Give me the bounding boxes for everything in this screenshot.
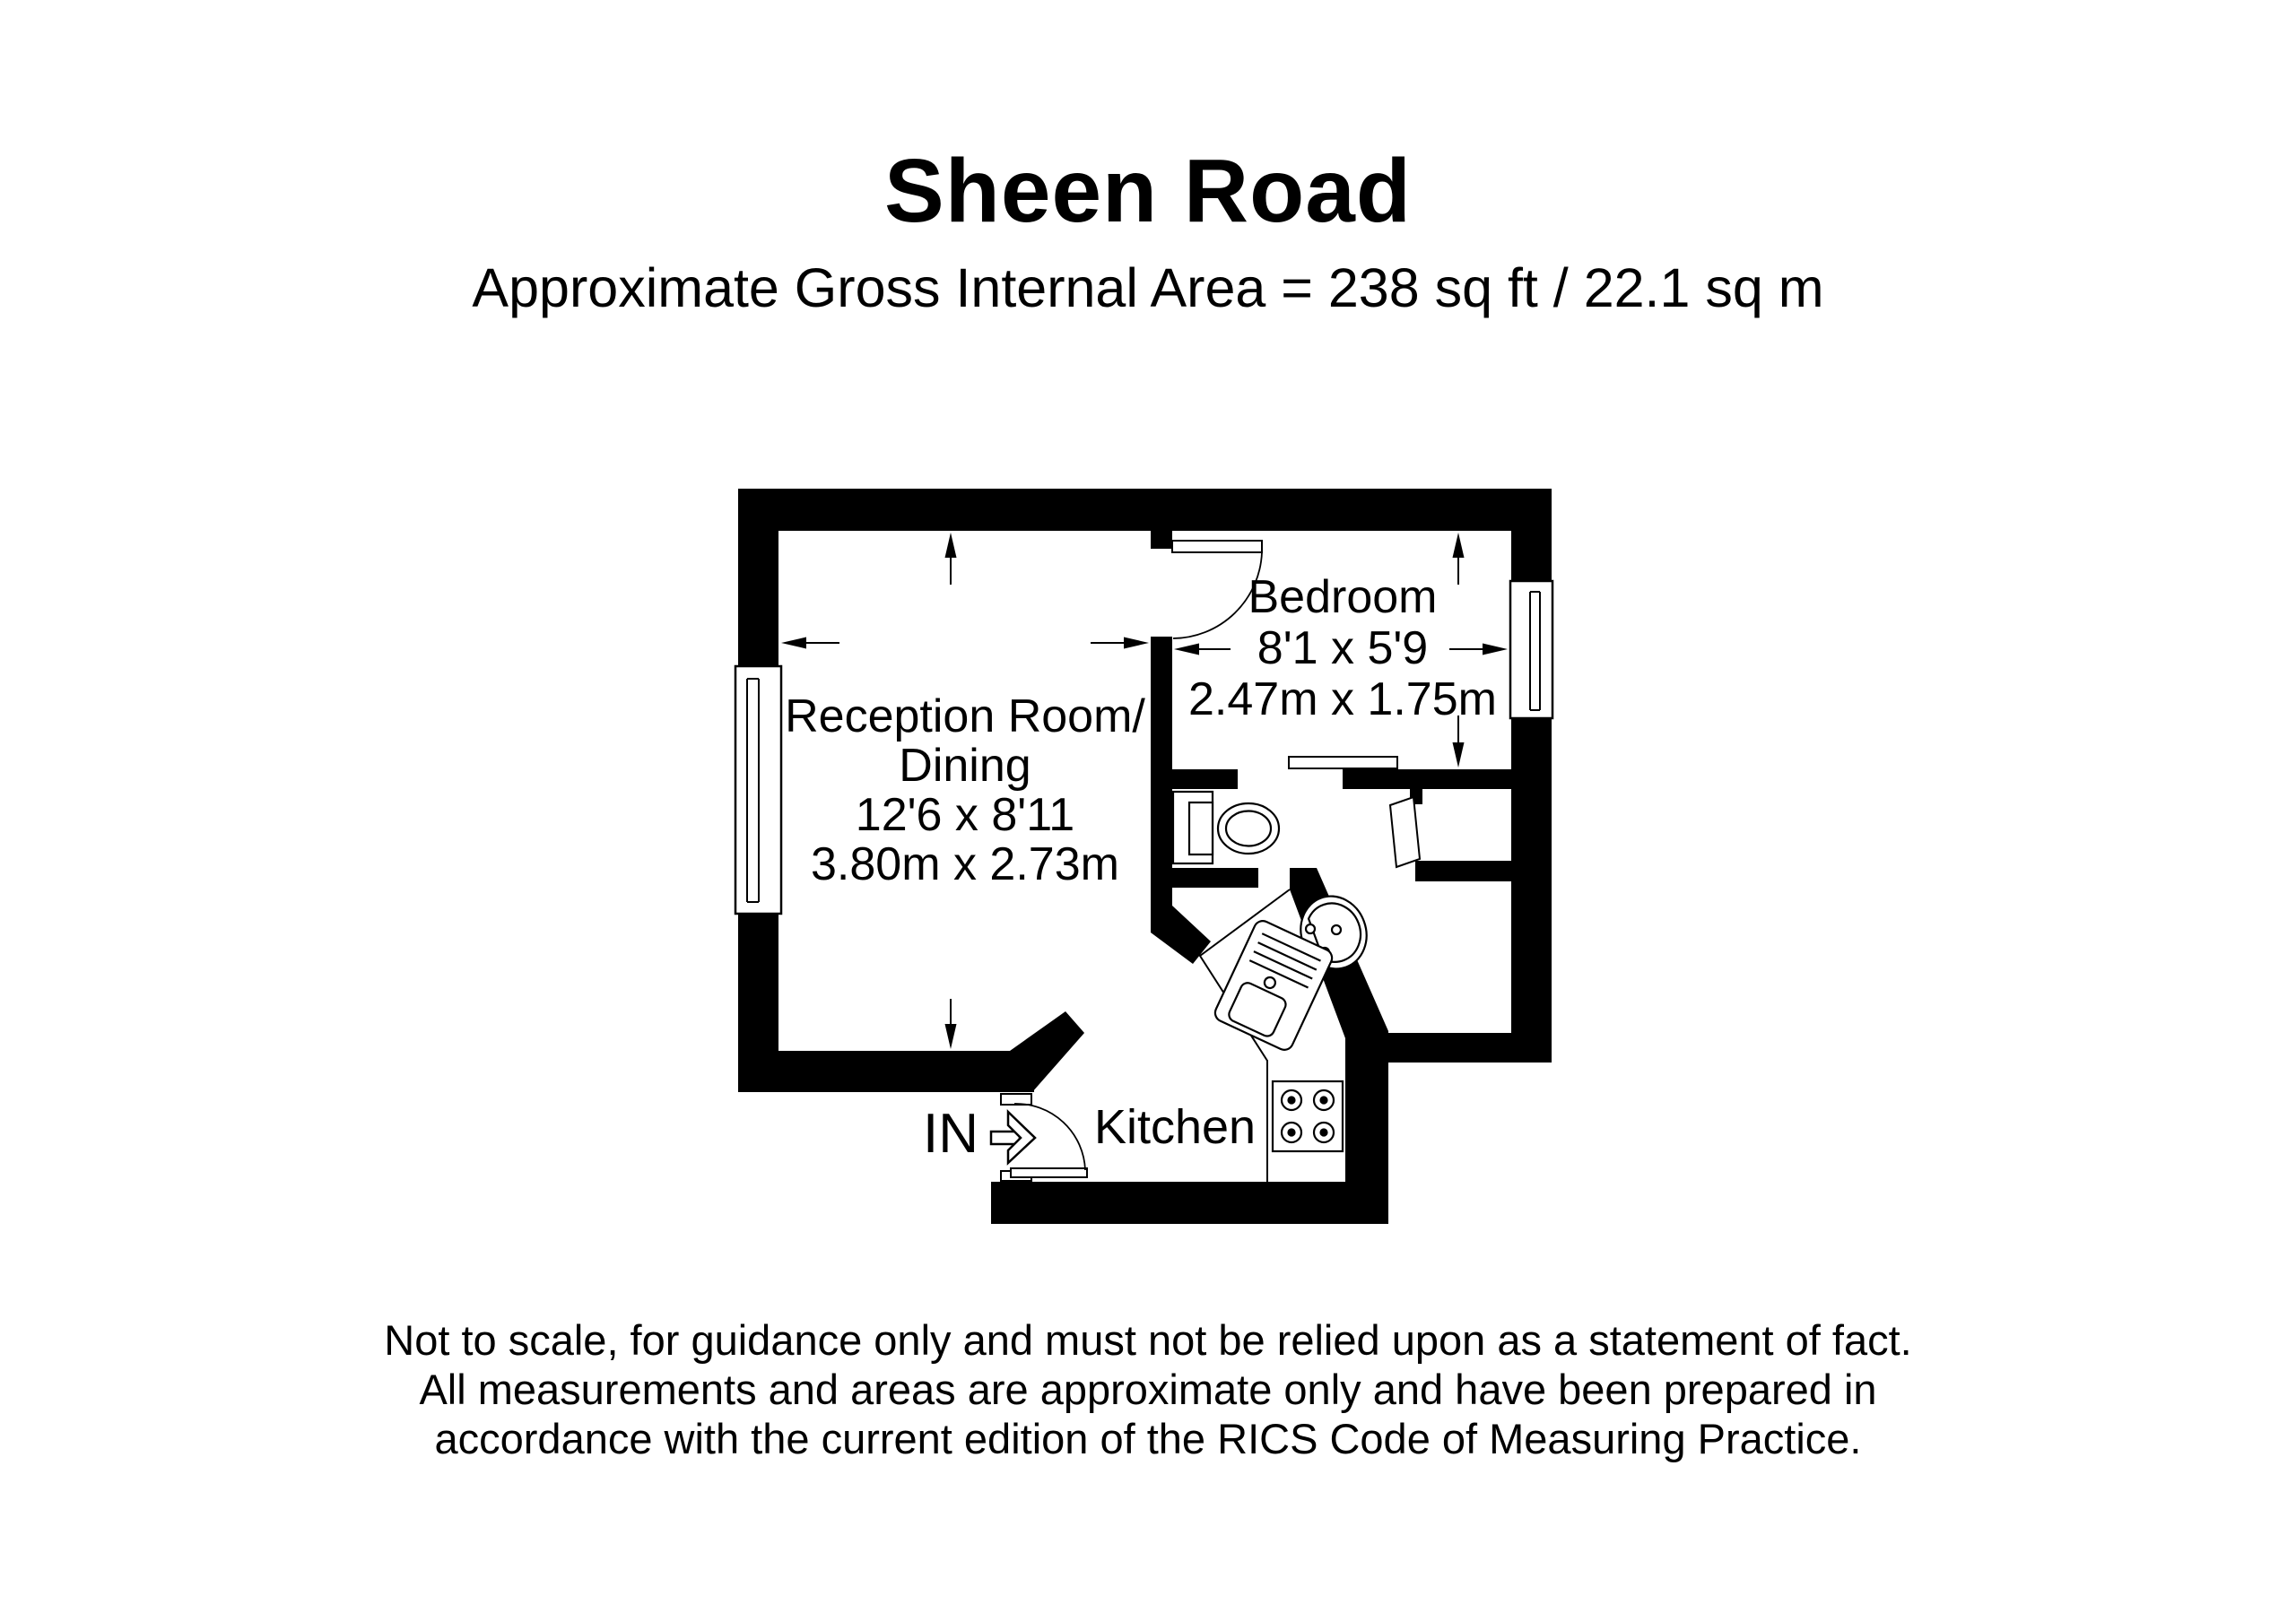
reception-dim-arrow-up [945, 533, 957, 585]
entrance-label: IN [897, 1109, 1004, 1159]
wall-bedroom-bottom-left [1172, 769, 1238, 789]
reception-name-line1: Reception Room/ [777, 692, 1153, 742]
window-bedroom-right [1510, 581, 1552, 718]
disclaimer-line-3: accordance with the current edition of t… [0, 1414, 2296, 1463]
bathroom-door-leaf [1289, 757, 1397, 768]
reception-size-imperial: 12'6 x 8'11 [777, 791, 1153, 840]
wall-left-upper [738, 531, 778, 668]
disclaimer-line-1: Not to scale, for guidance only and must… [0, 1315, 2296, 1365]
wall-divider-stub [1151, 531, 1172, 549]
wall-bedroom-bottom-right [1343, 769, 1511, 789]
wall-kitchen-bottom [991, 1182, 1388, 1224]
toilet [1173, 792, 1279, 863]
wall-bottom-right [1388, 1033, 1552, 1063]
window-reception-left [735, 666, 781, 914]
closet-door [1390, 797, 1420, 867]
wall-bathroom-bottom [1172, 868, 1258, 888]
reception-room-label: Reception Room/ Dining 12'6 x 8'11 3.80m… [777, 692, 1153, 889]
bedroom-label: Bedroom 8'1 x 5'9 2.47m x 1.75m [1173, 572, 1512, 725]
bedroom-name: Bedroom [1173, 572, 1512, 623]
wall-closet-bottom [1415, 861, 1511, 881]
bedroom-size-metric: 2.47m x 1.75m [1173, 674, 1512, 725]
floorplan-page: Sheen Road Approximate Gross Internal Ar… [0, 0, 2296, 1622]
disclaimer: Not to scale, for guidance only and must… [0, 1315, 2296, 1463]
wall-reception-bottom [738, 1051, 1034, 1092]
reception-dim-arrow-down [945, 999, 957, 1049]
wall-top [738, 489, 1552, 531]
reception-dim-arrow-right [1091, 638, 1149, 649]
bedroom-size-imperial: 8'1 x 5'9 [1173, 623, 1512, 674]
wall-right-lower [1511, 717, 1552, 1063]
kitchen-label: Kitchen [1040, 1102, 1309, 1152]
wall-divider-main [1151, 637, 1172, 932]
disclaimer-line-2: All measurements and areas are approxima… [0, 1365, 2296, 1414]
reception-size-metric: 3.80m x 2.73m [777, 840, 1153, 889]
reception-dim-arrow-left [781, 638, 839, 649]
reception-name-line2: Dining [777, 742, 1153, 791]
wall-right-upper [1511, 531, 1552, 583]
